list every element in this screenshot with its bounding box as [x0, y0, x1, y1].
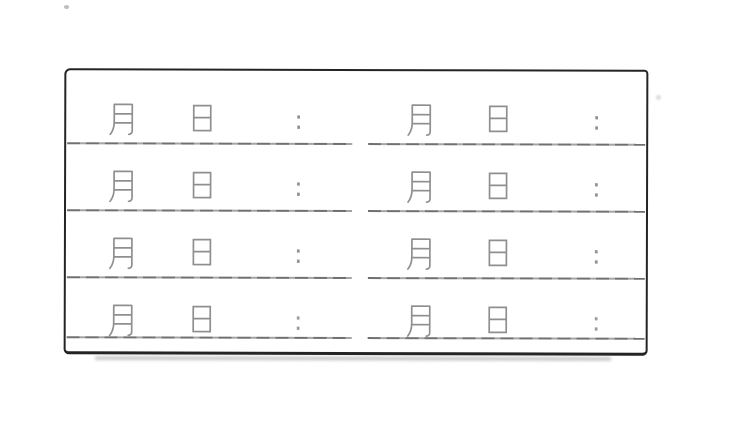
- day-kanji-glyph: [486, 304, 510, 335]
- time-separator-colon: :: [294, 108, 303, 134]
- date-time-cell: :: [356, 145, 648, 213]
- month-kanji-glyph: [406, 236, 434, 270]
- day-kanji-glyph: [486, 103, 510, 134]
- day-kanji-glyph: [190, 103, 214, 134]
- table-row: : :: [66, 278, 646, 347]
- date-time-cell: :: [356, 71, 648, 146]
- time-separator-colon: :: [294, 309, 303, 335]
- date-time-cell: :: [66, 144, 358, 212]
- day-kanji-glyph: [486, 170, 510, 201]
- date-time-cell: :: [66, 211, 358, 279]
- scanned-page: : : :: [0, 0, 732, 427]
- time-separator-colon: :: [592, 109, 601, 135]
- time-separator-colon: :: [592, 310, 601, 336]
- scan-shadow: [95, 357, 611, 361]
- day-kanji-glyph: [190, 237, 214, 268]
- time-separator-colon: :: [592, 176, 601, 202]
- day-kanji-glyph: [190, 170, 214, 201]
- time-separator-colon: :: [294, 242, 303, 268]
- time-separator-colon: :: [592, 243, 601, 269]
- date-time-cell: :: [66, 70, 358, 145]
- date-time-cell: :: [356, 212, 648, 280]
- month-kanji-glyph: [406, 169, 434, 203]
- table-row: : :: [66, 211, 646, 280]
- scan-speck: [64, 4, 70, 9]
- month-kanji-glyph: [406, 102, 434, 136]
- table-row: : :: [66, 144, 646, 213]
- month-kanji-glyph: [406, 303, 434, 337]
- table-row: : :: [66, 70, 646, 146]
- month-kanji-glyph: [108, 168, 136, 202]
- day-kanji-glyph: [486, 237, 510, 268]
- scan-smudge: [656, 95, 661, 100]
- time-separator-colon: :: [294, 175, 303, 201]
- day-kanji-glyph: [190, 304, 214, 335]
- month-kanji-glyph: [108, 101, 136, 135]
- month-kanji-glyph: [108, 235, 136, 269]
- month-kanji-glyph: [108, 302, 136, 336]
- date-time-form-table: : : :: [64, 68, 649, 356]
